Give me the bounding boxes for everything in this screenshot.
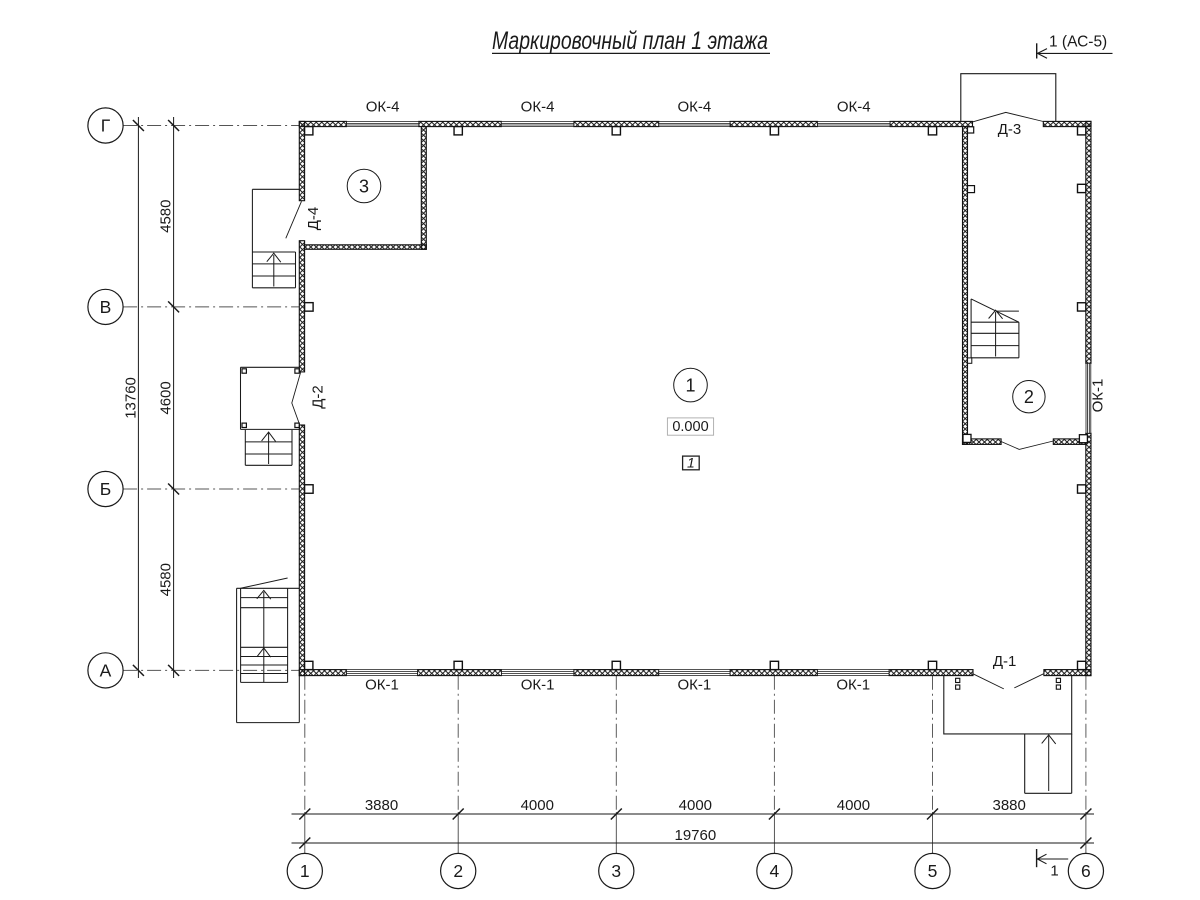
svg-text:Д-4: Д-4: [305, 207, 322, 231]
svg-text:4000: 4000: [521, 797, 554, 814]
svg-text:Д-1: Д-1: [993, 653, 1017, 670]
svg-text:1 (АС-5): 1 (АС-5): [1049, 34, 1107, 51]
svg-text:4580: 4580: [158, 563, 175, 596]
svg-text:ОК-1: ОК-1: [365, 677, 399, 694]
svg-text:ОК-4: ОК-4: [366, 99, 400, 116]
svg-text:13760: 13760: [123, 377, 140, 419]
svg-text:А: А: [100, 660, 112, 680]
svg-text:Д-2: Д-2: [310, 385, 327, 409]
svg-text:5: 5: [928, 861, 938, 881]
svg-text:ОК-1: ОК-1: [678, 677, 712, 694]
svg-text:4600: 4600: [158, 381, 175, 414]
svg-text:ОК-1: ОК-1: [521, 677, 555, 694]
svg-text:2: 2: [453, 861, 463, 881]
svg-text:3880: 3880: [993, 797, 1026, 814]
svg-text:3880: 3880: [365, 797, 398, 814]
svg-text:4: 4: [770, 861, 780, 881]
svg-text:1: 1: [685, 376, 695, 396]
svg-text:19760: 19760: [674, 827, 716, 844]
svg-text:4000: 4000: [679, 797, 712, 814]
svg-text:ОК-4: ОК-4: [837, 99, 871, 116]
svg-text:Д-3: Д-3: [998, 121, 1022, 138]
svg-text:3: 3: [359, 177, 369, 197]
svg-text:1: 1: [687, 454, 695, 470]
svg-text:Маркировочный план 1 этажа: Маркировочный план 1 этажа: [492, 27, 768, 55]
svg-text:ОК-4: ОК-4: [521, 99, 555, 116]
svg-text:В: В: [100, 297, 112, 317]
svg-text:Б: Б: [100, 479, 111, 499]
svg-text:4000: 4000: [837, 797, 870, 814]
svg-text:6: 6: [1081, 861, 1091, 881]
svg-text:2: 2: [1024, 387, 1034, 407]
svg-text:3: 3: [611, 861, 621, 881]
svg-text:4580: 4580: [158, 200, 175, 233]
svg-text:ОК-1: ОК-1: [836, 677, 870, 694]
svg-text:0.000: 0.000: [672, 419, 708, 435]
svg-text:ОК-1: ОК-1: [1090, 379, 1107, 413]
svg-text:1: 1: [300, 861, 310, 881]
svg-text:Г: Г: [101, 116, 111, 136]
svg-text:1: 1: [1050, 863, 1058, 880]
svg-text:ОК-4: ОК-4: [678, 99, 712, 116]
